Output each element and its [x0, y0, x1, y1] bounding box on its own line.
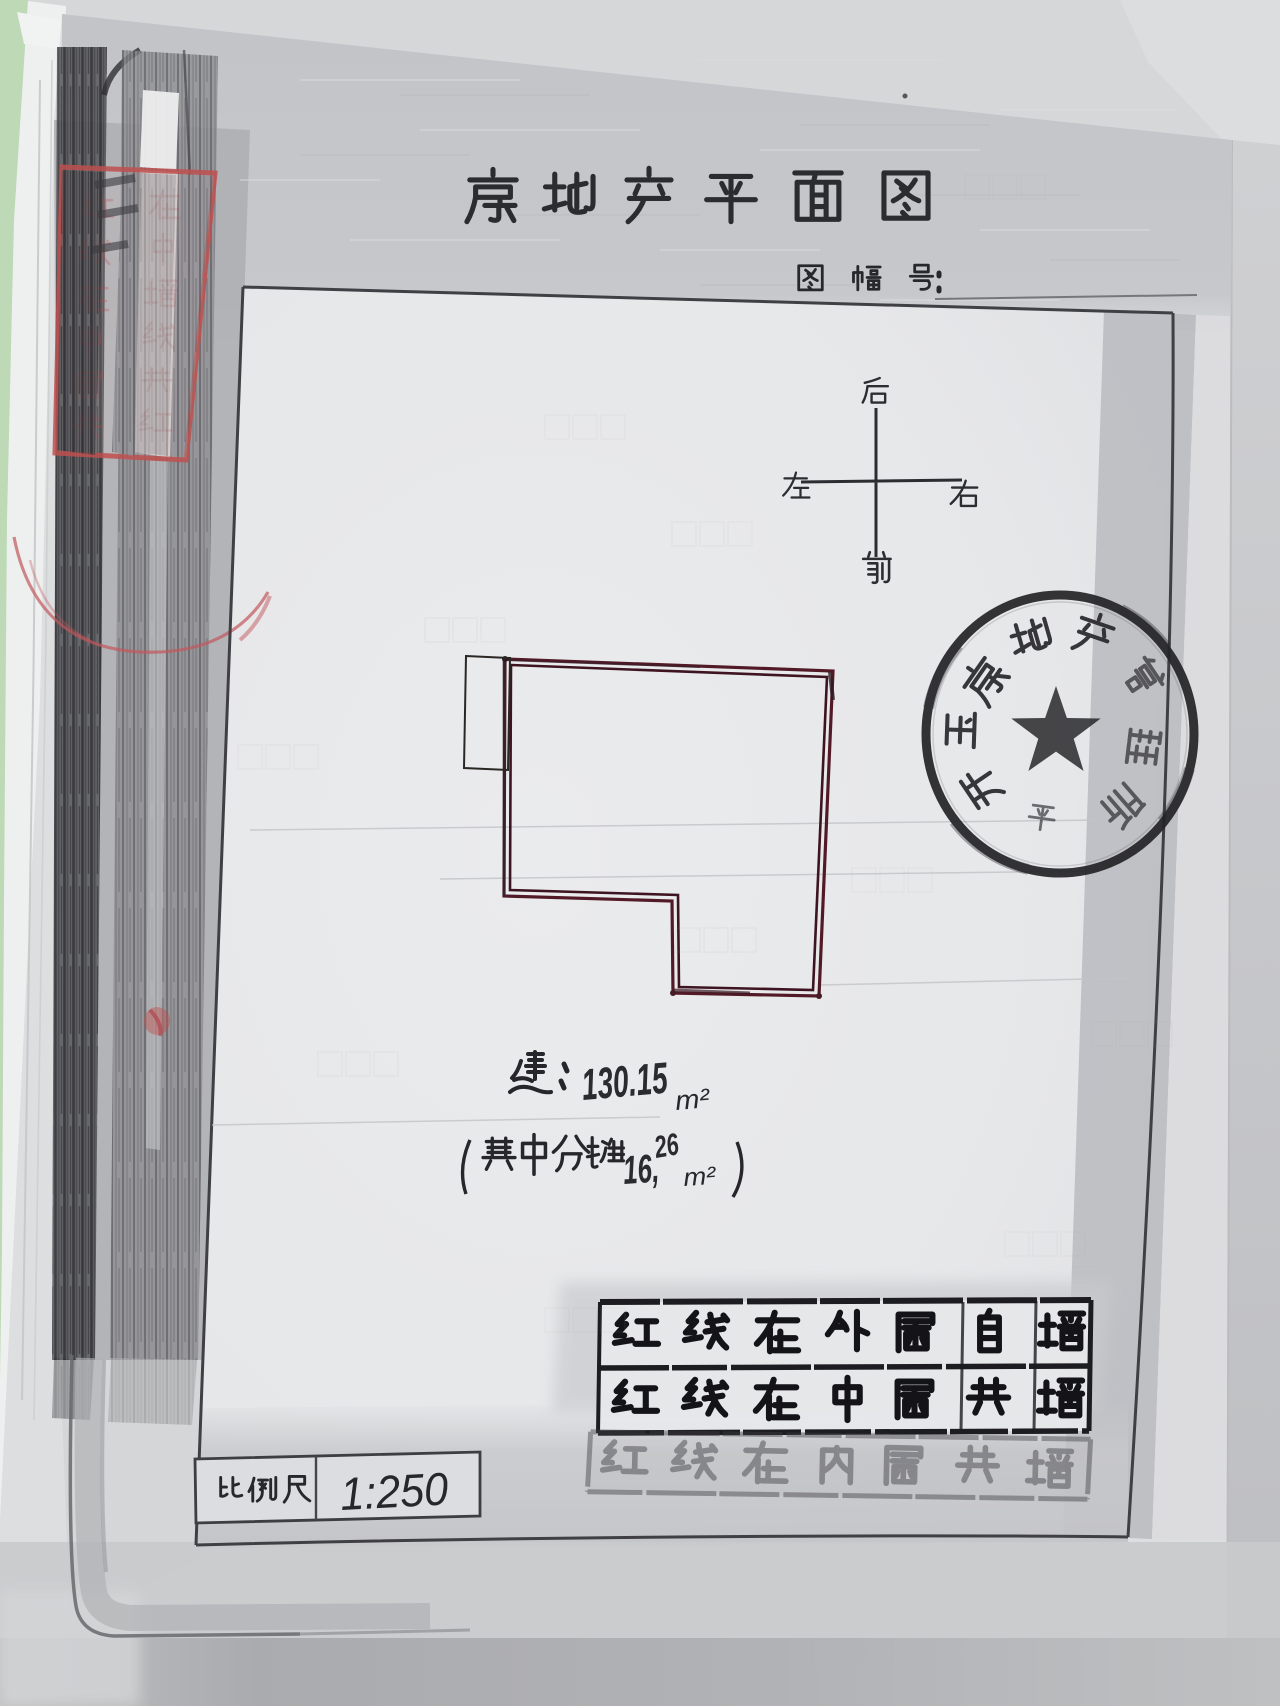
svg-text:1:250: 1:250	[339, 1462, 450, 1520]
svg-text:130.15: 130.15	[580, 1054, 670, 1110]
svg-text:m²: m²	[674, 1083, 712, 1116]
svg-text:m²: m²	[682, 1162, 718, 1192]
